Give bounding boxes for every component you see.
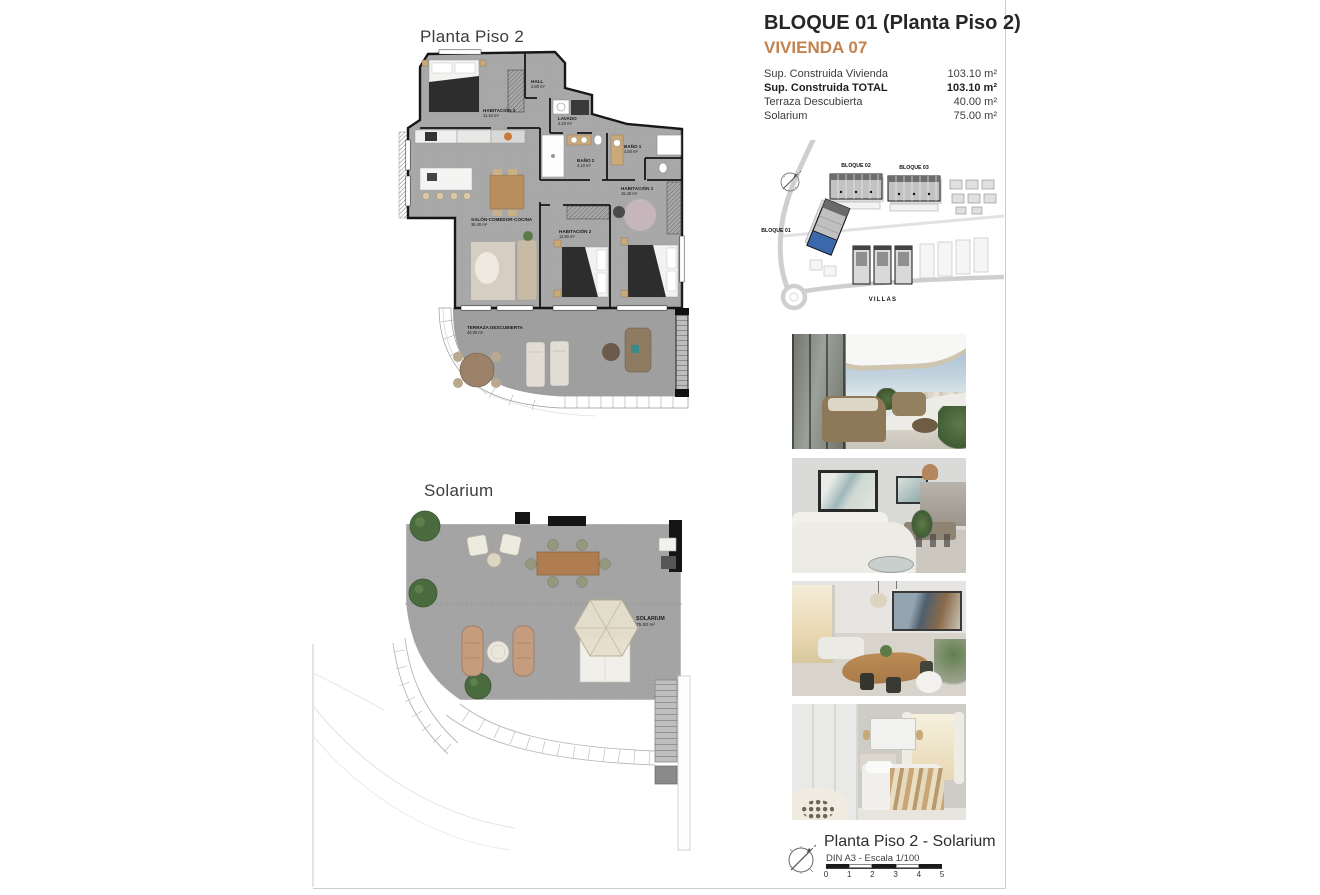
site-label-bloque-02: BLOQUE 02 (841, 163, 871, 169)
photo-bedroom-render (792, 704, 966, 820)
table-plant (880, 645, 892, 657)
site-plan: BLOQUE 02 BLOQUE 03 BLOQUE 01 VILLAS (752, 140, 1004, 315)
greenery (938, 406, 966, 449)
summary-row-total: Sup. Construida TOTAL 103.10 m² (764, 81, 997, 95)
surface-summary: Sup. Construida Vivienda 103.10 m² Sup. … (764, 67, 997, 123)
floor-plan-planta-piso-2: HABITACIÓN 311.10 m² HALL2.80 m² LAVADO2… (395, 40, 715, 440)
unit-title: VIVIENDA 07 (764, 38, 867, 58)
summary-value: 75.00 m² (954, 109, 997, 123)
scale-tick: 1 (847, 870, 851, 879)
scale-tick: 3 (893, 870, 897, 879)
wall-art (818, 470, 878, 512)
scale-tick: 5 (940, 870, 944, 879)
summary-row: Sup. Construida Vivienda 103.10 m² (764, 67, 997, 81)
solarium-stairs (655, 676, 690, 850)
side-table (912, 418, 938, 433)
scale-segment (919, 864, 942, 868)
scale-ticks: 0 1 2 3 4 5 (826, 870, 946, 880)
stool (916, 671, 942, 693)
scale-tick: 0 (824, 870, 828, 879)
bloque-03-building (888, 176, 942, 211)
summary-row: Terraza Descubierta 40.00 m² (764, 95, 997, 109)
summary-label: Sup. Construida TOTAL (764, 81, 888, 95)
solarium-deck (405, 512, 682, 701)
striped-throw (890, 768, 944, 810)
summary-label: Terraza Descubierta (764, 95, 862, 109)
page-border-right (1005, 0, 1006, 889)
summary-row: Solarium 75.00 m² (764, 109, 997, 123)
pendant-lamp (922, 464, 938, 480)
photo-dining-render (792, 581, 966, 696)
site-label-bloque-01: BLOQUE 01 (761, 228, 791, 234)
pendant-lamp (870, 593, 887, 608)
dining-chair (886, 677, 901, 693)
photo-living-room-render (792, 458, 966, 573)
wall-lamp (863, 730, 870, 740)
pillow (866, 761, 892, 773)
site-label-villas: VILLAS (869, 297, 898, 303)
summary-label: Solarium (764, 109, 807, 123)
photo-terrace-render (792, 334, 966, 449)
dining-chair (860, 673, 874, 690)
summary-value: 40.00 m² (954, 95, 997, 109)
patterned-cushion (802, 800, 834, 820)
sofa-cushions (828, 398, 878, 411)
plant (910, 508, 934, 540)
curtain (954, 712, 964, 784)
stairs (675, 308, 689, 397)
coffee-table (868, 556, 914, 573)
bloque-01-building (804, 198, 850, 255)
scale-segment (826, 864, 849, 868)
summary-label: Sup. Construida Vivienda (764, 67, 888, 81)
footer-scale-note: DIN A3 - Escala 1/100 (826, 853, 919, 864)
wall-lamp (916, 730, 923, 740)
scale-bar (826, 864, 942, 869)
neighbor-houses (950, 180, 996, 214)
site-label-bloque-03: BLOQUE 03 (899, 165, 929, 171)
summary-value: 103.10 m² (947, 81, 997, 95)
block-title: BLOQUE 01 (Planta Piso 2) (764, 12, 1021, 35)
wall-art (892, 591, 962, 631)
scale-tick: 4 (917, 870, 921, 879)
scale-tick: 2 (870, 870, 874, 879)
scale-segment (872, 864, 895, 868)
summary-value: 103.10 m² (947, 67, 997, 81)
footer-title: Planta Piso 2 - Solarium (824, 833, 996, 851)
footer-compass-icon (782, 838, 822, 884)
wall-art (870, 718, 916, 750)
scale-segment (849, 864, 872, 868)
scale-segment (896, 864, 919, 868)
rattan-chair (892, 392, 926, 416)
floor-plan-solarium: SOLARIUM75.00 m² (310, 498, 710, 890)
